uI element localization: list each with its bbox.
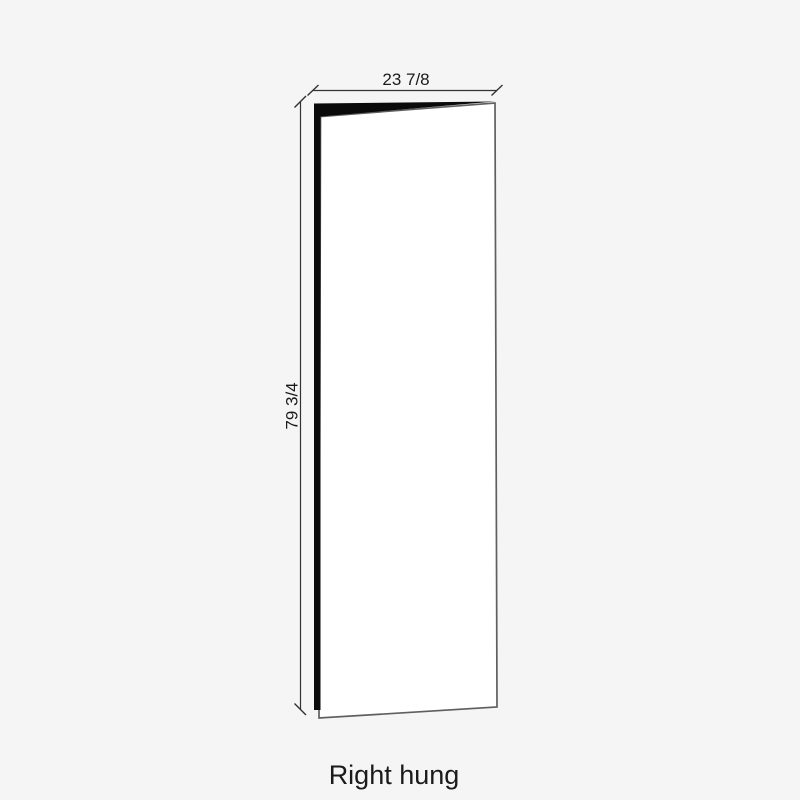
width-dimension-label: 23 7/8	[382, 70, 429, 89]
height-dimension-label: 79 3/4	[283, 382, 302, 429]
diagram-caption: Right hung	[329, 760, 460, 790]
door-diagram: 23 7/8 79 3/4 Right hung	[0, 0, 800, 800]
width-dimension: 23 7/8	[308, 70, 503, 96]
door-face-panel	[319, 103, 497, 718]
diagram-canvas: 23 7/8 79 3/4 Right hung	[0, 0, 800, 800]
height-dimension: 79 3/4	[283, 96, 307, 715]
door	[314, 102, 497, 719]
